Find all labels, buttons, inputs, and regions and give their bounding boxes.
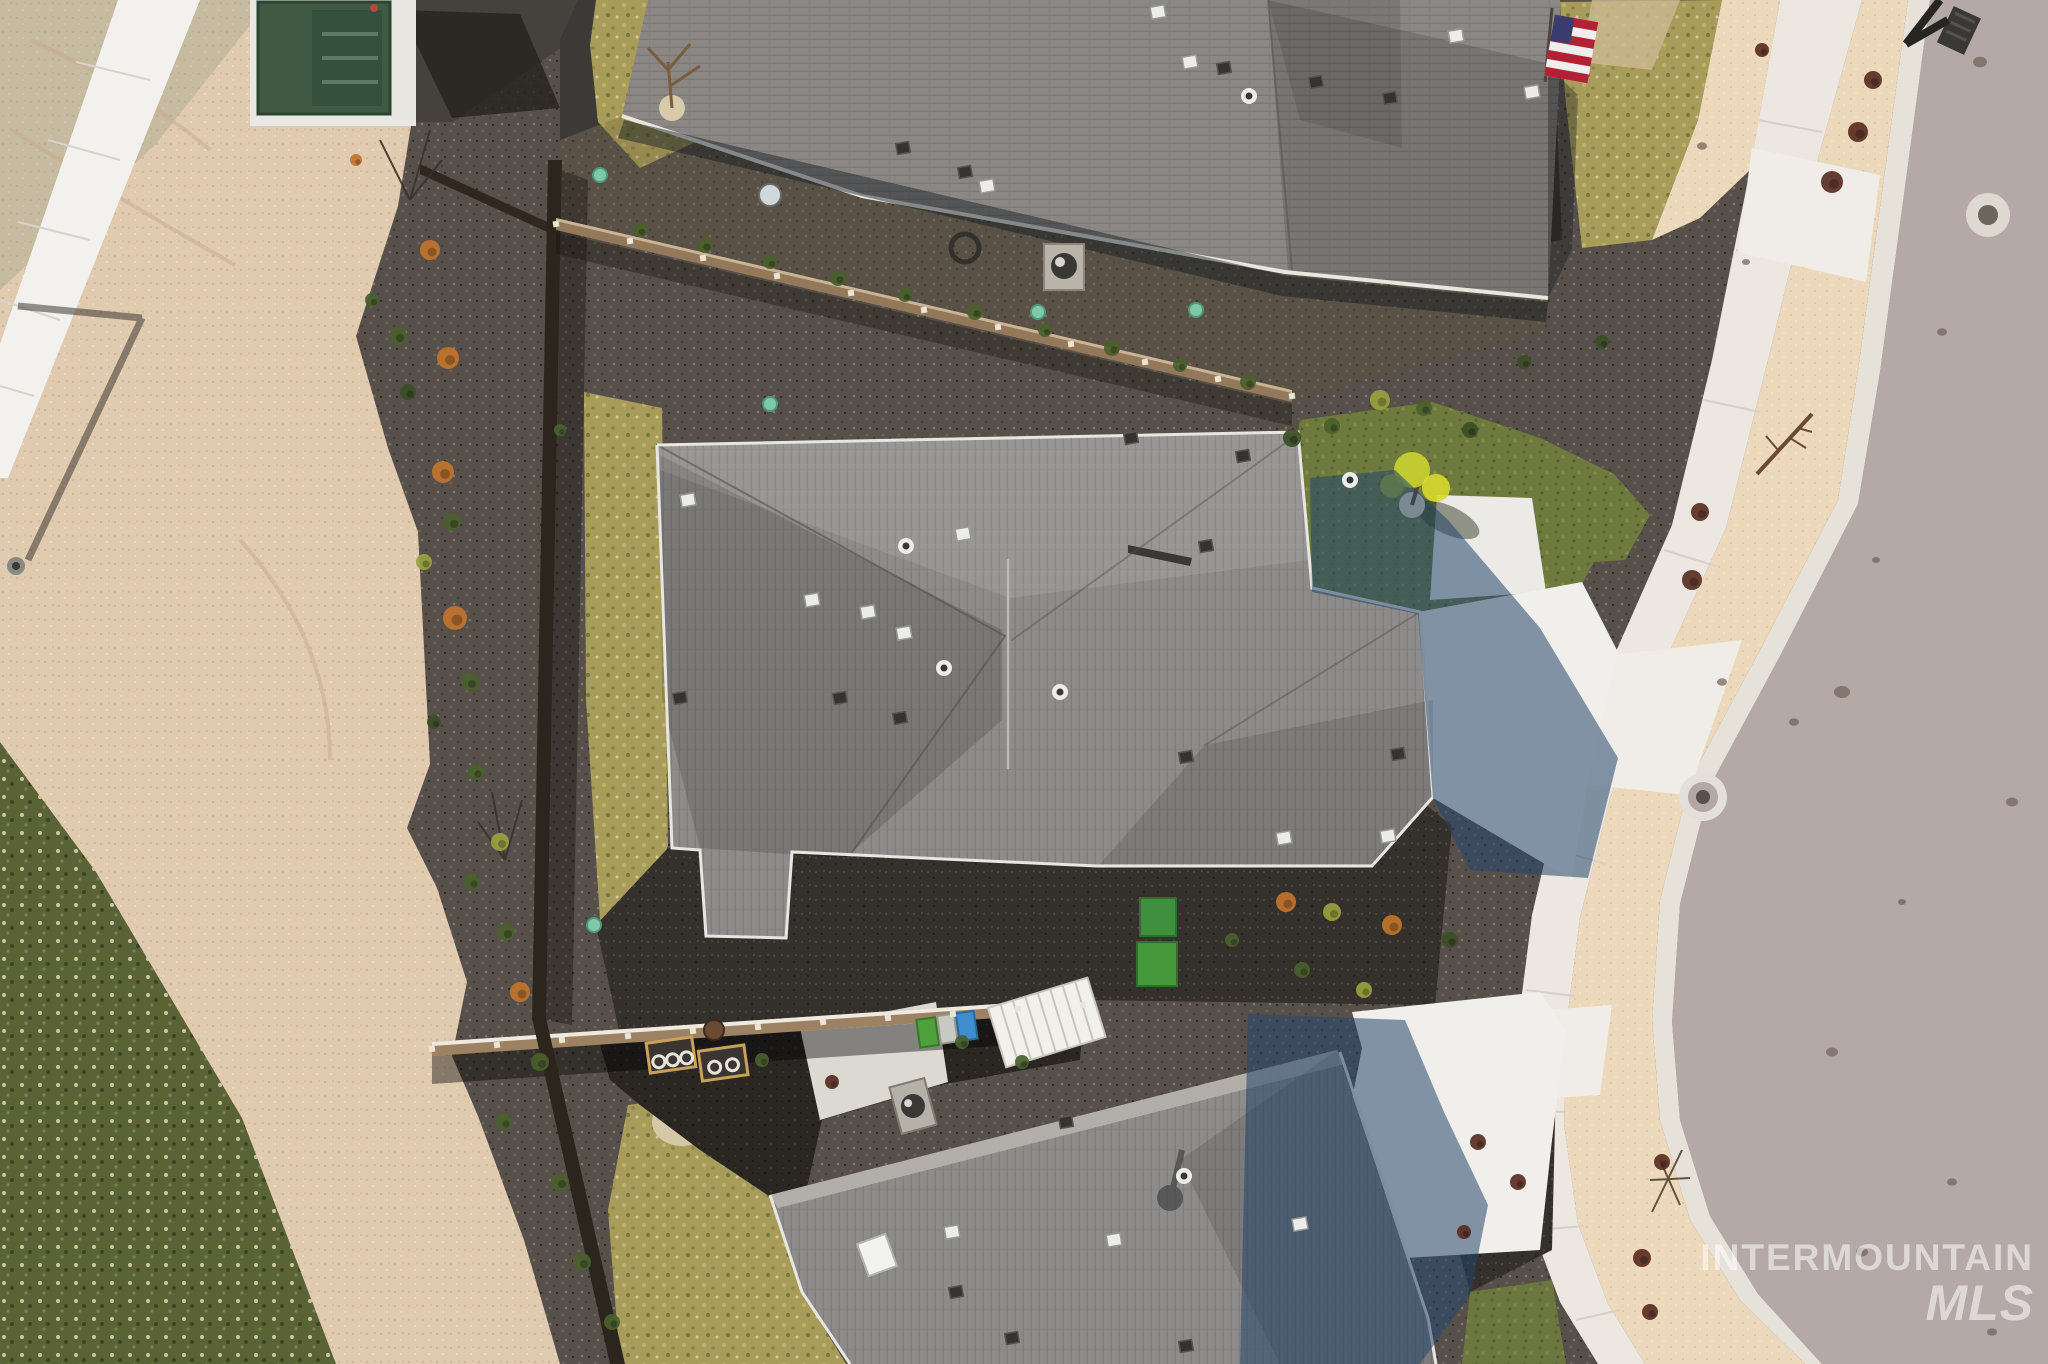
shrub-core [1648,1310,1655,1317]
shrub-core [445,355,455,365]
roof-vent-light [804,593,820,607]
fence-post-cap [1142,359,1149,366]
road-dirt-spot [1937,328,1947,336]
roof-vent-dark [1005,1331,1020,1344]
shrub-core [1362,988,1369,995]
roof-vent-dark [1124,431,1139,444]
road-dirt-spot [1973,57,1987,68]
roof-vent-dark [1217,61,1232,74]
plumbing-vent-hole [1246,93,1253,100]
fence-post-cap [627,238,634,245]
fence-post-cap [700,255,707,262]
shrub-core [355,159,360,164]
manhole-mid [1679,773,1727,821]
shrub-core [1231,939,1237,945]
barrel [704,1020,724,1040]
shrub-core [1390,923,1399,932]
shrub-core [1110,346,1117,353]
shrub-core [470,880,477,887]
fence-post-cap [885,1015,892,1022]
aerial-scene [0,0,2048,1364]
road-dirt-spot [1898,899,1906,905]
shrub-core [498,840,506,848]
shrub-core [703,243,710,250]
shrub-core [1468,428,1475,435]
shrub-core [1021,1061,1027,1067]
lawn-bottom-right [1462,1280,1566,1364]
roof-vent-dark [1179,750,1194,763]
shrub-core [1300,968,1307,975]
roof-vent-light [860,605,876,619]
shrub-core [559,429,564,434]
roof-vent-light [1448,29,1464,43]
roof-vent-light [944,1225,960,1239]
shrub-core [1523,361,1529,367]
watermark-line2: MLS [1700,1278,2034,1328]
roof-vent-dark [1236,449,1251,462]
shrub-core [1871,78,1879,86]
shrub-core [1044,329,1050,335]
utility-marker [1031,305,1045,319]
shrub-core [973,310,980,317]
fence-post-cap [921,307,928,314]
roof-vent-light [680,493,696,507]
shrub-core [428,248,437,257]
fence-post-cap [494,1042,501,1049]
shrub-core [450,520,458,528]
shrub-core [831,1081,837,1087]
shrub-core [761,1059,767,1065]
roof-vent-dark [673,691,688,704]
utility-marker [763,397,777,411]
plumbing-vent-hole [1181,1173,1188,1180]
watermark: INTERMOUNTAIN MLS [1700,1239,2034,1328]
utility-box [258,2,390,114]
roof-vent-dark [1383,91,1398,104]
road-dirt-spot [1717,678,1727,686]
shrub-core [1516,1180,1523,1187]
fence-post-cap [774,273,781,280]
shrub-core [1601,341,1607,347]
fence-post-cap [690,1028,697,1035]
shrub-core [961,1041,967,1047]
roof-vent-light [955,527,971,541]
utility-marker [587,918,601,932]
shrub-core [580,1260,588,1268]
shrub-core [452,615,463,626]
shrub-core [1640,1256,1648,1264]
trash-bins-backyard [1137,898,1177,986]
ac-fan-top [1051,253,1077,279]
fence-post-cap [625,1033,632,1040]
shrub [350,154,362,166]
satellite-dish [759,184,781,206]
roof-vent-dark [958,165,973,178]
shrub-core [538,1060,546,1068]
roof-vent-dark [1199,539,1214,552]
road-dirt-spot [1872,557,1880,563]
roof-vent-dark [1059,1115,1074,1128]
aerial-photo: INTERMOUNTAIN MLS [0,0,2048,1364]
shrub-core [474,770,481,777]
shrub-core [440,469,450,479]
fence-post-cap [559,1037,566,1044]
fence-post-cap [950,1011,957,1018]
plumbing-vent-hole [941,665,948,672]
fence-post-cap [755,1024,762,1031]
shrub-core [1690,578,1699,587]
shrub-core [1660,1160,1667,1167]
roof-vent-light [1150,5,1166,19]
shrub-core [371,299,377,305]
shrub-core [904,294,910,300]
streetlight-base-left [7,557,25,575]
shrub-core [1698,510,1706,518]
plumbing-vent-hole [1347,477,1354,484]
roof-vent-dark [1391,747,1406,760]
roof-vent-light [979,179,995,193]
roof-vent-light [1524,85,1540,99]
shrub-core [1761,49,1767,55]
fence-post-cap [820,1019,827,1026]
fence-post-cap [1215,376,1222,383]
road-dirt-spot [1947,1178,1957,1186]
roof-vent-dark [949,1285,964,1298]
road-dirt-spot [1789,718,1799,726]
roof-vent-dark [893,711,908,724]
fence-post-cap [1068,341,1075,348]
road-dirt-spot [1834,686,1850,698]
fence-post-cap [429,1046,436,1053]
road-dirt-spot [1742,259,1750,265]
shrub-core [468,680,476,688]
roof-vent-light [1380,829,1396,843]
road-dirt-spot [1697,142,1707,150]
shrub-core [422,560,429,567]
fence-post-cap [848,290,855,297]
shrub-core [518,990,527,999]
shrub-core [1284,900,1293,909]
shrub-core [1448,938,1455,945]
shrub-core [502,1120,509,1127]
road-dirt-spot [1826,1048,1838,1057]
shrub [554,424,566,436]
shrub-core [406,390,413,397]
roof-vent-light [1106,1233,1122,1247]
shrub-core [1290,436,1298,444]
shrub-core [1856,130,1865,139]
shrub-core [1179,364,1185,370]
manhole-top [1966,193,2010,237]
shrub-core [558,1180,566,1188]
fence-post-cap [1289,393,1296,400]
lawn-left-strip-dry [584,392,668,920]
roof-vent-dark [896,141,911,154]
shrub-core [769,261,775,267]
fence-post-cap [1080,1002,1087,1009]
road-dirt-spot [2006,798,2018,807]
shrub-core [1246,380,1253,387]
watermark-line1: INTERMOUNTAIN [1700,1239,2034,1276]
shrub-core [396,334,404,342]
shrub-core [836,276,843,283]
roof-vent-light [1292,1217,1308,1231]
roof-vent-light [1182,55,1198,69]
roof-vent-dark [1179,1339,1194,1352]
fence-post-cap [995,324,1002,331]
plumbing-vent-hole [903,543,910,550]
roof-vent-light [1276,831,1292,845]
roof-vent-dark [1309,75,1324,88]
fence-post-cap [1015,1006,1022,1013]
fence-post-cap [553,221,560,228]
roof-vent-dark [833,691,848,704]
roof-vent-light [896,626,912,640]
shrub-core [639,229,645,235]
shrub-core [610,1320,617,1327]
shrub-core [504,930,512,938]
shrub-core [1463,1231,1469,1237]
ac-fan-hub [1055,257,1065,267]
shrub-core [1330,424,1337,431]
shrub-core [1476,1140,1483,1147]
shrub-core [1422,406,1429,413]
shrub-core [1378,398,1387,407]
shrub-core [1829,179,1839,189]
plumbing-vent-hole [1057,689,1064,696]
shrub-core [1330,910,1338,918]
utility-marker [1189,303,1203,317]
shrub-core [433,721,439,727]
utility-marker [593,168,607,182]
